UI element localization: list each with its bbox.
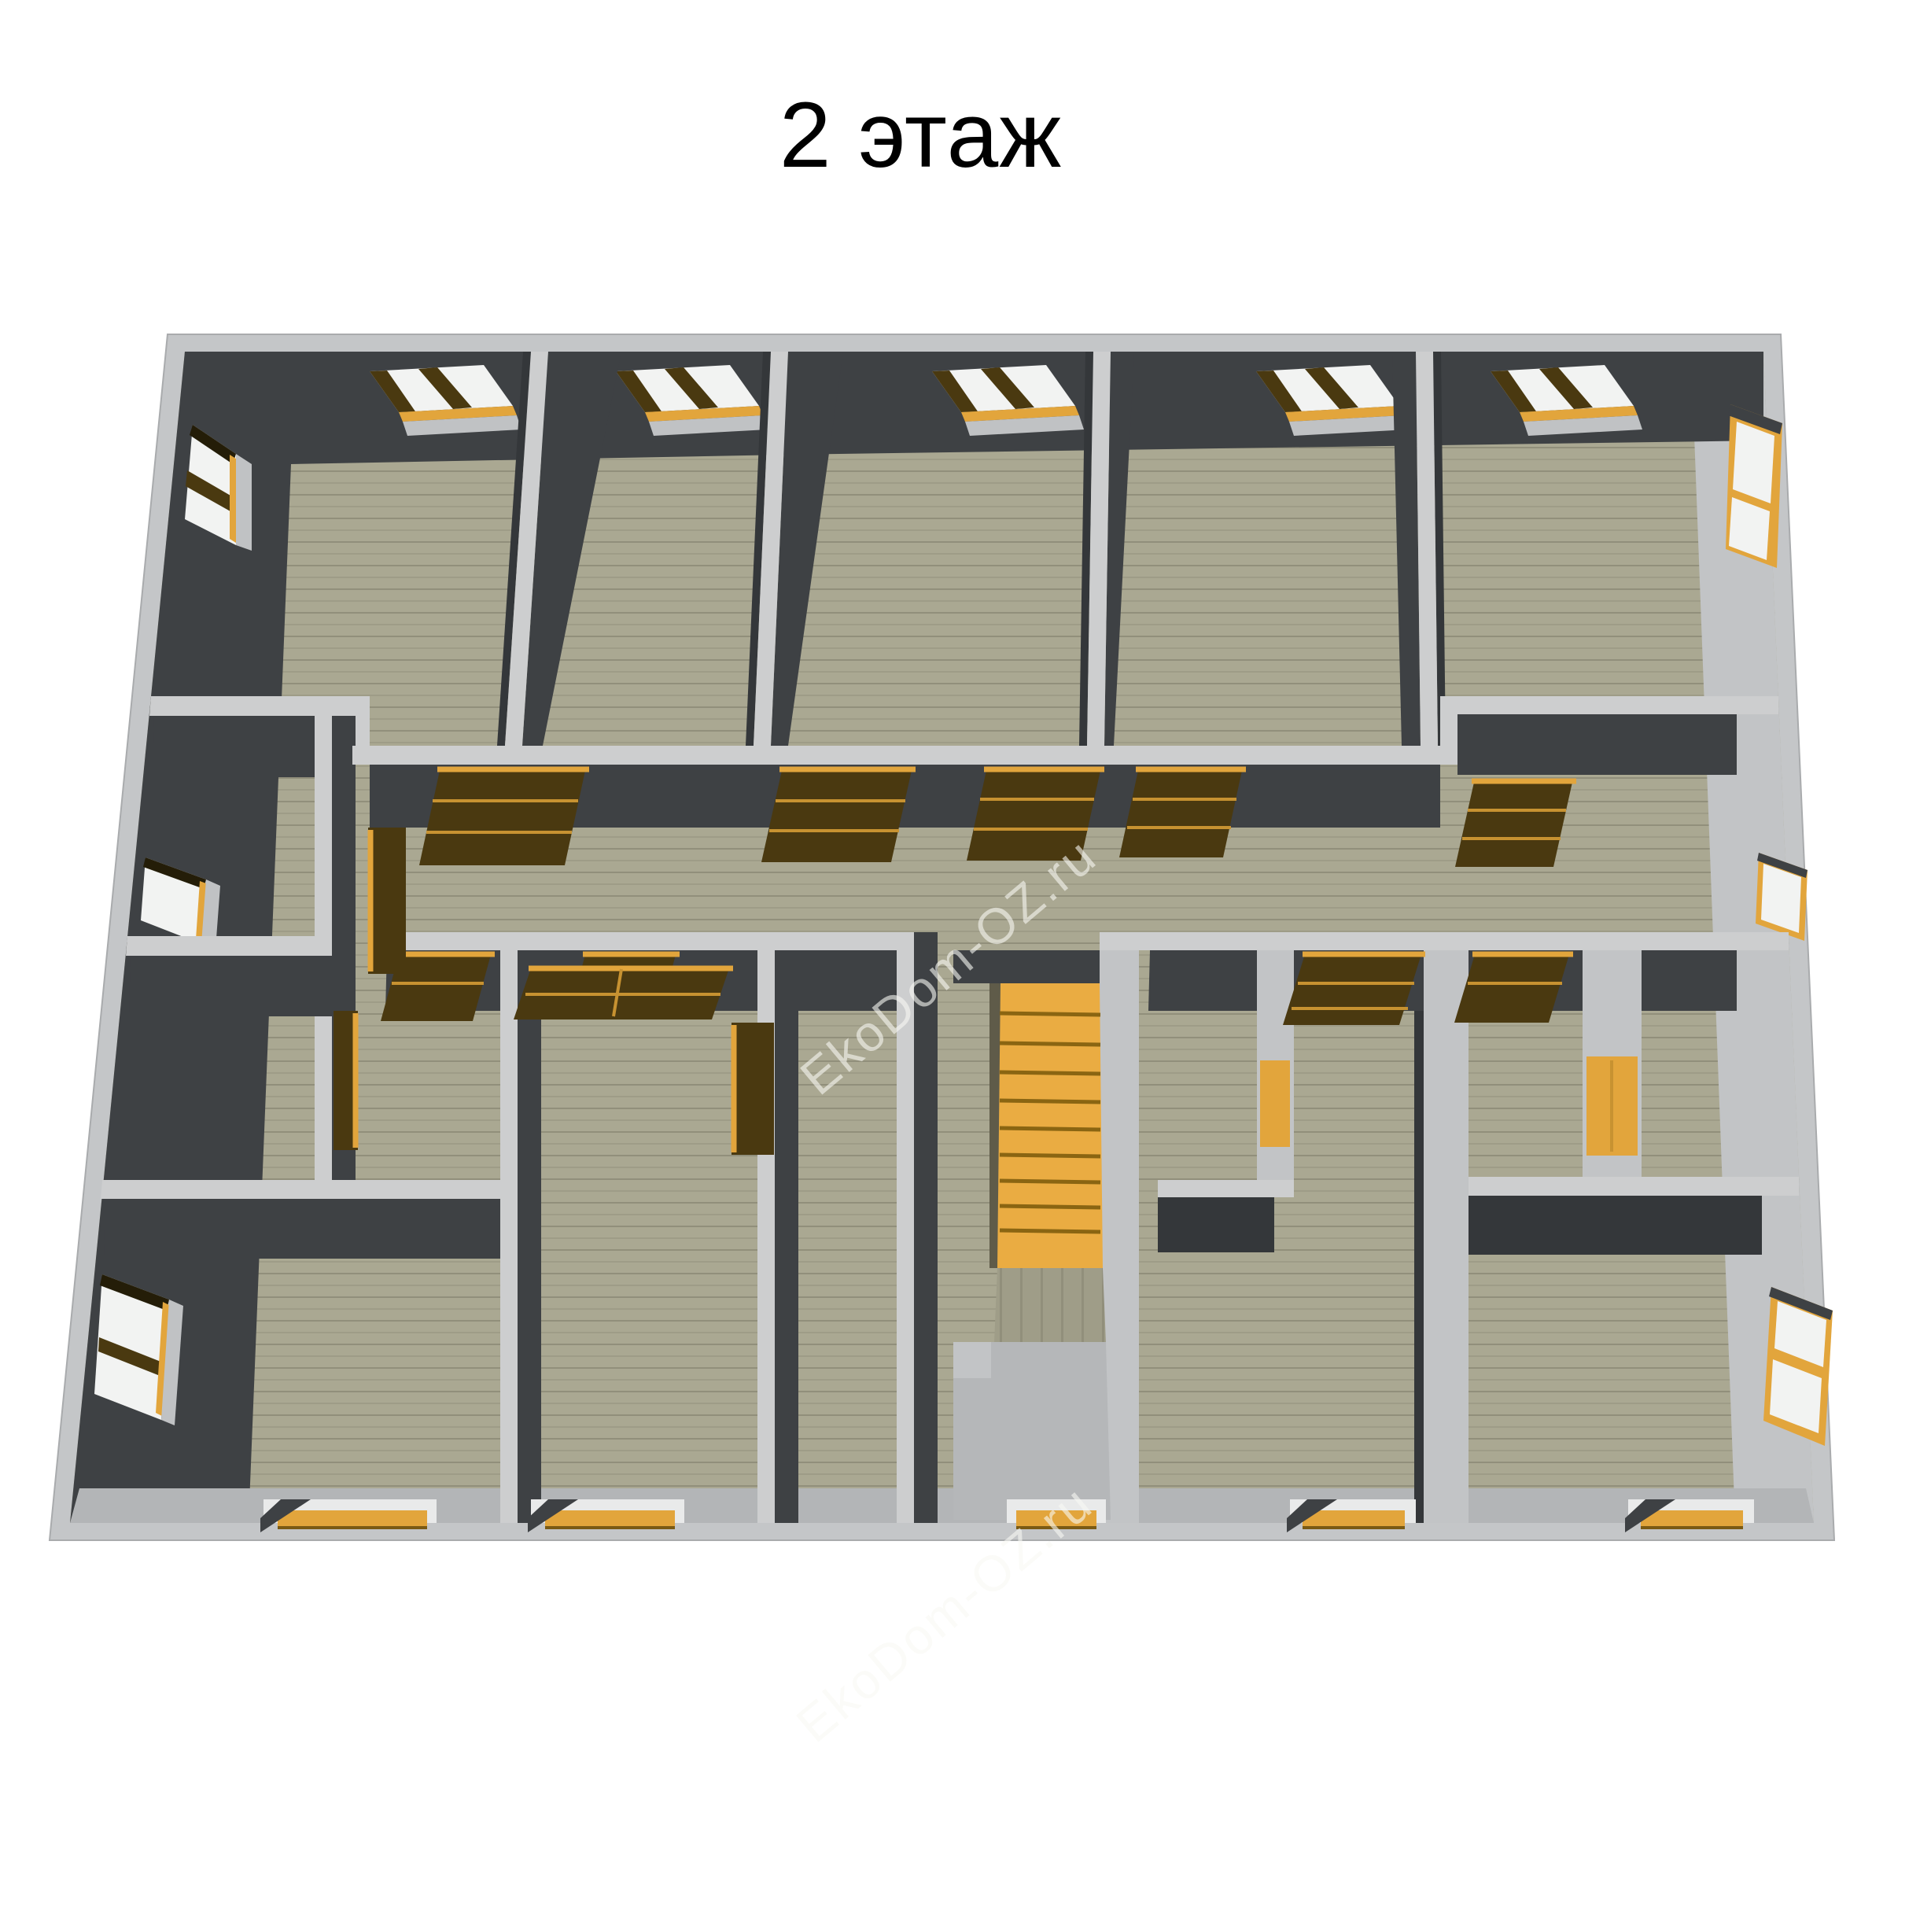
wall-face	[1158, 1197, 1274, 1252]
wall-top	[1469, 1177, 1799, 1196]
wall-top	[1440, 696, 1457, 765]
wall-top	[1158, 1180, 1294, 1197]
left-room-door	[334, 1011, 358, 1150]
closet-door	[1260, 1060, 1290, 1147]
corridor-south-wall-top-right	[1100, 932, 1789, 950]
wall-top	[126, 936, 332, 956]
wall-shadow-edge	[1414, 1011, 1424, 1523]
wall-face	[104, 1199, 500, 1259]
closet-double-door	[514, 966, 733, 1019]
right-column-north-wall-top	[1440, 696, 1778, 714]
under-stair-floor	[994, 1268, 1106, 1342]
wall-top	[149, 696, 370, 716]
wall-face	[129, 956, 332, 1016]
bottom-opening-3	[1287, 1499, 1416, 1532]
wall-face	[518, 950, 541, 1523]
floor-plan-render: EkoDom-OZ.ru EkoDom-OZ.ru	[0, 0, 1931, 1932]
wall-top	[101, 1180, 518, 1199]
bottom-opening-4	[1625, 1499, 1754, 1532]
right-window-1	[1726, 404, 1782, 568]
right-window-3	[1763, 1287, 1833, 1446]
bottom-right-divider-wall	[1424, 950, 1469, 1523]
corridor-south-wall-top-left	[368, 932, 936, 950]
corridor-west-end-door	[368, 828, 406, 974]
corridor-north-wall-top	[352, 746, 1457, 765]
bottom-opening-1	[260, 1499, 437, 1532]
stair-flight	[997, 983, 1103, 1268]
bottom-opening-2	[528, 1499, 684, 1532]
middle-room-door	[731, 1023, 774, 1155]
wall-face	[1469, 1196, 1762, 1255]
page: 2 этаж	[0, 0, 1931, 1932]
landing-step	[953, 1342, 991, 1378]
wall-top	[500, 950, 518, 1523]
corridor-door-1	[419, 767, 589, 865]
corridor-door-2	[761, 767, 916, 862]
right-column-north-wall-face	[1457, 714, 1737, 775]
wall-face	[775, 950, 798, 1523]
